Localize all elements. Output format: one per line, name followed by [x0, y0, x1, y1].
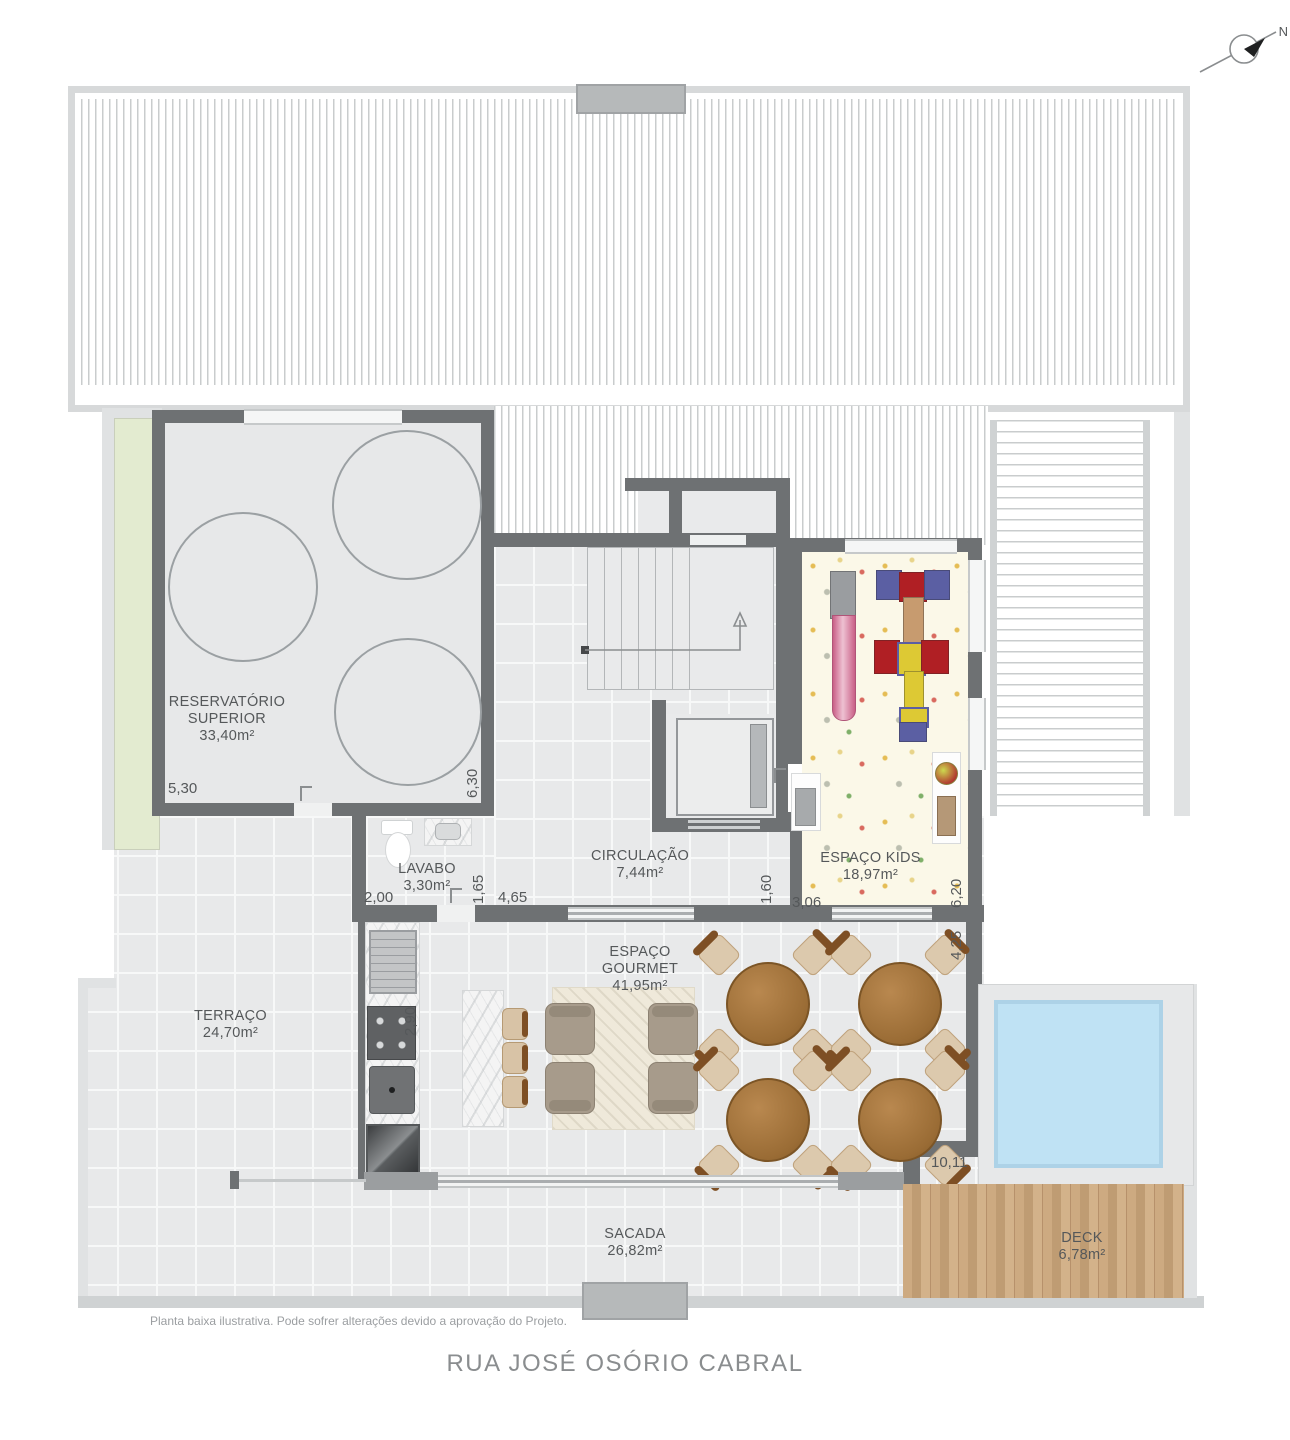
stair-shaft-cell-left — [638, 491, 669, 533]
dim-lavabo-width: 2,00 — [364, 889, 393, 906]
kitchen-sink — [369, 1066, 415, 1114]
left-boundary-step — [78, 978, 116, 988]
bar-stool-1 — [502, 1008, 528, 1040]
water-tank-1 — [332, 430, 482, 580]
play-base-blue — [899, 722, 927, 742]
table-top — [726, 1078, 810, 1162]
dim-gourmet-width: 10,11 — [931, 1154, 967, 1171]
chair — [696, 1048, 741, 1093]
gourmet-south-frame-right — [838, 1172, 904, 1190]
elevator-west-wall — [652, 700, 666, 832]
kids-picture — [937, 796, 956, 836]
deck-name: DECK — [1022, 1230, 1142, 1247]
deck-area: 6,78m² — [1022, 1247, 1142, 1264]
reservatorio-window — [244, 409, 402, 425]
roof-access-box-top — [576, 84, 686, 114]
water-tank-3 — [334, 638, 482, 786]
kids-name: ESPAÇO KIDS — [808, 850, 933, 867]
dim-reservatorio-height: 6,30 — [464, 769, 481, 798]
circulacao-area: 7,44m² — [575, 865, 705, 882]
lavabo-door-gap — [437, 905, 475, 922]
roof-hatching — [81, 99, 1177, 385]
sink-basin — [435, 823, 461, 840]
room-label-sacada: SACADA 26,82m² — [575, 1226, 695, 1260]
gourmet-south-sliding-door — [438, 1175, 838, 1188]
dim-kitchen-height: 2,90 — [402, 1007, 419, 1036]
mask-right — [984, 816, 1192, 984]
armchair-4 — [648, 1062, 698, 1114]
stair-top-wall — [625, 478, 790, 491]
elevator-mechanism — [750, 724, 767, 808]
room-label-gourmet: ESPAÇO GOURMET 41,95m² — [570, 944, 710, 995]
elevator-door-line-2 — [688, 826, 760, 829]
roof-area — [68, 86, 1190, 412]
dim-circulacao-width: 4,65 — [498, 889, 527, 906]
kids-cart — [795, 788, 816, 826]
kids-north-window — [845, 539, 957, 554]
reservatorio-area: 33,40m² — [152, 728, 302, 745]
play-bridge-tan — [903, 597, 924, 645]
dim-gourmet-height: 4,25 — [948, 931, 965, 960]
dim-kids-height: 6,20 — [948, 879, 965, 908]
stair-wall-door-gap — [690, 535, 746, 545]
bar-stool-2 — [502, 1042, 528, 1074]
left-boundary-lower — [78, 978, 88, 1298]
street-name: RUA JOSÉ OSÓRIO CABRAL — [0, 1350, 1250, 1378]
left-boundary-upper — [102, 408, 114, 850]
bar-stool-3 — [502, 1076, 528, 1108]
reservatorio-door-gap — [294, 803, 332, 816]
chair — [828, 932, 873, 977]
kids-area: 18,97m² — [808, 867, 933, 884]
room-label-kids: ESPAÇO KIDS 18,97m² — [808, 850, 933, 884]
kids-west-wall-upper — [790, 552, 802, 764]
terrace-rail-post — [230, 1171, 239, 1189]
north-compass: N — [1196, 20, 1288, 80]
armchair-1 — [545, 1003, 595, 1055]
north-label: N — [1279, 24, 1288, 39]
room-label-reservatorio: RESERVATÓRIO SUPERIOR 33,40m² — [152, 694, 302, 745]
room-label-terraco: TERRAÇO 24,70m² — [168, 1008, 293, 1042]
slide-tube — [832, 615, 856, 721]
table-top — [858, 962, 942, 1046]
terraco-area: 24,70m² — [168, 1025, 293, 1042]
disclaimer-text: Planta baixa ilustrativa. Pode sofrer al… — [150, 1314, 567, 1328]
dim-lavabo-height: 1,65 — [470, 875, 487, 904]
kids-door-swing-mark — [774, 768, 786, 783]
circulacao-name: CIRCULAÇÃO — [575, 848, 705, 865]
elevator-door-line-1 — [688, 820, 760, 823]
island-counter — [462, 990, 504, 1127]
floor-plan: RESERVATÓRIO SUPERIOR 33,40m² 5,30 6,30 — [0, 0, 1290, 1440]
gourmet-area: 41,95m² — [570, 978, 710, 995]
dining-table-set-3 — [701, 1053, 831, 1183]
armchair-3 — [545, 1062, 595, 1114]
stair-direction-arrow — [581, 556, 761, 660]
play-platform-blue-right — [924, 570, 950, 600]
fridge — [369, 930, 417, 994]
kids-east-window-2 — [968, 698, 986, 770]
terraco-name: TERRAÇO — [168, 1008, 293, 1025]
room-label-circulacao: CIRCULAÇÃO 7,44m² — [575, 848, 705, 882]
sliding-door-kids — [832, 907, 932, 920]
slide-platform — [830, 571, 856, 619]
room-label-deck: DECK 6,78m² — [1022, 1230, 1142, 1264]
reservatorio-name-line1: RESERVATÓRIO — [152, 694, 302, 711]
table-top — [858, 1078, 942, 1162]
stair-shaft-cell-right — [682, 491, 776, 533]
gourmet-south-frame-left — [364, 1172, 438, 1190]
gourmet-west-wall-line — [358, 905, 365, 1182]
water-tank-2 — [168, 512, 318, 662]
sacada-name: SACADA — [575, 1226, 695, 1243]
chair — [828, 1048, 873, 1093]
terrace-rail — [239, 1179, 366, 1182]
chair — [922, 1048, 967, 1093]
north-arrow-icon — [1196, 20, 1288, 80]
stair-shaft-divider — [669, 491, 682, 533]
dim-reservatorio-width: 5,30 — [168, 780, 197, 797]
pool — [994, 1000, 1163, 1168]
table-top — [726, 962, 810, 1046]
roof-access-box-bottom — [582, 1282, 688, 1320]
sliding-door-circulacao — [568, 907, 694, 920]
kids-east-window-1 — [968, 560, 986, 652]
lavabo-name: LAVABO — [377, 861, 477, 878]
gourmet-name: ESPAÇO GOURMET — [570, 944, 710, 978]
sacada-area: 26,82m² — [575, 1243, 695, 1260]
play-block-red-right — [921, 640, 949, 674]
armchair-2 — [648, 1003, 698, 1055]
dim-circulacao-height: 1,60 — [758, 875, 775, 904]
dim-kids-width: 3,06 — [792, 894, 821, 911]
door-swing-mark — [300, 786, 312, 801]
reservatorio-name-line2: SUPERIOR — [152, 711, 302, 728]
fruit-bowl — [935, 762, 958, 785]
